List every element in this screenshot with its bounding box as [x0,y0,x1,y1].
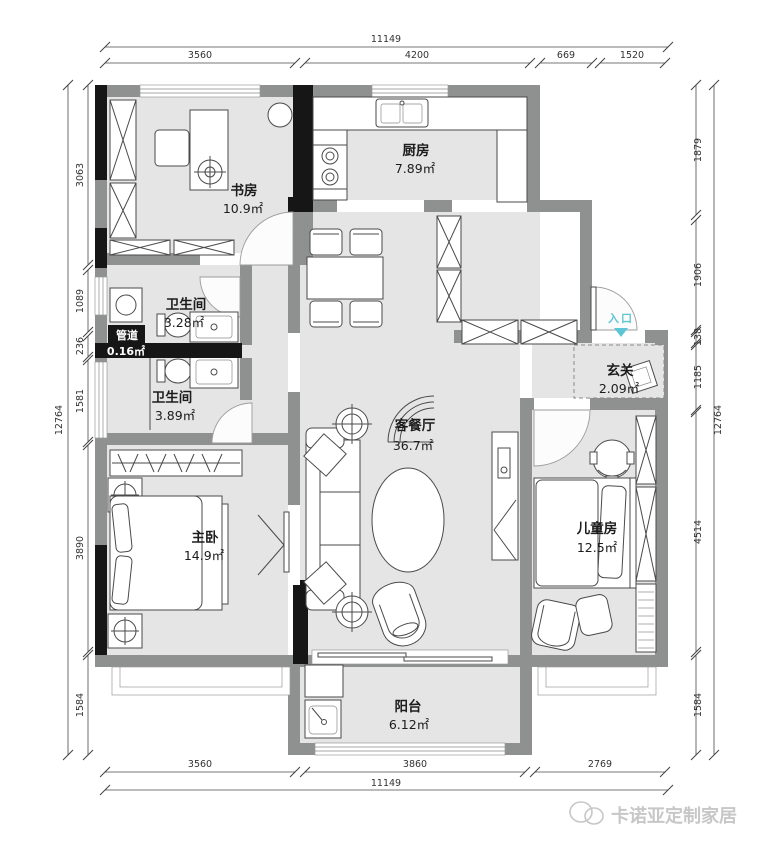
dim-right-overall: 12764 [713,405,724,435]
dim-bottom-seg: 3560 [188,759,212,770]
bath-upper-area: 3.28㎡ [164,315,205,330]
hanging-rack [110,450,242,476]
stove [313,145,347,189]
toilet-lower [157,359,191,383]
dim-left-seg: 236 [75,337,86,355]
pendant-light-icon [268,103,292,127]
bath-lower-name: 卫生间 [152,389,193,406]
dim-top-overall: 11149 [371,34,401,45]
living-area: 36.7㎡ [393,438,434,453]
duct-name: 管道 [116,328,138,342]
foyer-area: 2.09㎡ [599,381,640,396]
dim-left-seg: 1089 [75,289,86,313]
dining-table [307,257,383,299]
balcony-area: 6.12㎡ [389,717,430,732]
dim-top-seg: 1520 [620,50,644,61]
watermark-logo-icon [585,808,603,824]
balcony-cabinet [305,665,343,697]
balcony-fixtures [305,665,343,738]
bath-upper-name: 卫生间 [166,296,207,313]
dim-left-seg: 1584 [75,693,86,717]
dim-left-overall: 12764 [54,405,65,435]
bay-window-master [112,667,290,695]
study-area: 10.9㎡ [223,201,264,216]
dim-right-seg: 1584 [693,693,704,717]
dim-right-seg: 4514 [693,520,704,544]
desk-chair [155,130,189,166]
vanity-lower [190,356,238,388]
foyer-name: 玄关 [607,362,635,379]
kids-armchair [530,598,583,652]
fridge [497,130,527,202]
duct-area: 0.16㎡ [107,344,145,358]
master-area: 14.9㎡ [184,548,225,563]
dim-left-seg: 3890 [75,536,86,560]
dim-top-seg: 4200 [405,50,429,61]
entrance-label: 入口 [608,312,634,325]
kitchen-sink [376,99,428,127]
watermark-text: 卡诺亚定制家居 [611,805,737,827]
laundry-sink [305,700,341,738]
watermark-logo-icon [570,802,592,822]
entrance-mark: 入口 [608,312,634,337]
watermark: 卡诺亚定制家居 [570,802,737,827]
bath-lower-area: 3.89㎡ [155,408,196,423]
dim-right-seg: 1879 [693,138,704,162]
kids-wardrobe [636,416,656,652]
kitchen-name: 厨房 [403,142,430,159]
dim-right-seg: 138 [693,328,704,346]
dim-right-seg: 1185 [693,365,704,389]
sofa [304,428,360,610]
dim-top-seg: 3560 [188,50,212,61]
downlight-icon [108,614,142,648]
kids-area: 12.5㎡ [577,540,618,555]
dim-bottom-seg: 3860 [403,759,427,770]
tv-cabinet [492,432,518,560]
washing-machine [110,288,142,322]
kitchen-area: 7.89㎡ [395,161,436,176]
floor-plan: 入口 书房 10.9㎡ 厨房 7.89㎡ 卫生间 3.28㎡ 管道 0.16㎡ … [0,0,776,849]
master-name: 主卧 [192,529,219,546]
living-name: 客餐厅 [394,417,436,434]
dim-top-seg: 669 [557,50,575,61]
study-name: 书房 [231,182,258,199]
dim-bottom-overall: 11149 [371,778,401,789]
coffee-table [372,468,444,572]
entrance-arrow-icon [614,328,628,337]
balcony-sliding-door [312,650,508,664]
dim-left-seg: 3063 [75,163,86,187]
dim-bottom-seg: 2769 [588,759,612,770]
dim-right-seg: 1906 [693,263,704,287]
balcony-name: 阳台 [395,698,422,715]
kids-name: 儿童房 [576,520,618,537]
dim-left-seg: 1581 [75,389,86,413]
bay-window-kids [538,667,656,695]
